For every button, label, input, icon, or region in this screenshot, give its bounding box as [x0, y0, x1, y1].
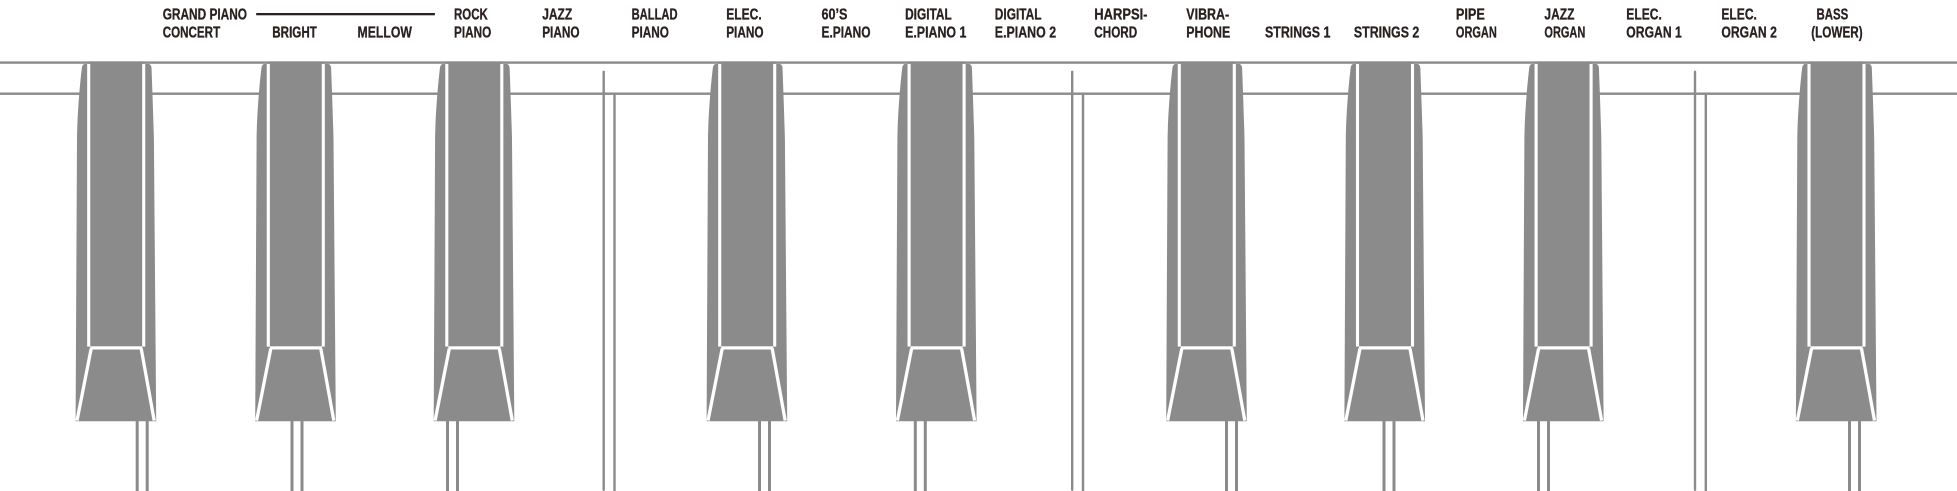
- svg-text:ORGAN: ORGAN: [1456, 25, 1497, 42]
- svg-text:60’S: 60’S: [822, 7, 848, 24]
- svg-text:BRIGHT: BRIGHT: [272, 25, 317, 42]
- svg-text:STRINGS 2: STRINGS 2: [1354, 25, 1420, 42]
- svg-text:ELEC.: ELEC.: [726, 7, 762, 24]
- svg-text:ELEC.: ELEC.: [1626, 7, 1662, 24]
- svg-text:BALLAD: BALLAD: [632, 7, 678, 24]
- svg-text:ORGAN 1: ORGAN 1: [1626, 25, 1682, 42]
- svg-text:ORGAN 2: ORGAN 2: [1721, 25, 1777, 42]
- svg-text:HARPSI-: HARPSI-: [1094, 7, 1147, 24]
- svg-text:MELLOW: MELLOW: [358, 25, 413, 42]
- svg-text:E.PIANO: E.PIANO: [822, 25, 871, 42]
- svg-text:PIANO: PIANO: [454, 25, 491, 42]
- svg-text:CHORD: CHORD: [1094, 25, 1137, 42]
- svg-text:JAZZ: JAZZ: [1544, 7, 1574, 24]
- svg-text:PIANO: PIANO: [726, 25, 763, 42]
- svg-text:DIGITAL: DIGITAL: [995, 7, 1042, 24]
- svg-text:E.PIANO 2: E.PIANO 2: [995, 25, 1057, 42]
- svg-text:JAZZ: JAZZ: [542, 7, 572, 24]
- svg-text:E.PIANO 1: E.PIANO 1: [905, 25, 967, 42]
- svg-text:PIANO: PIANO: [542, 25, 579, 42]
- svg-text:ELEC.: ELEC.: [1721, 7, 1757, 24]
- svg-text:GRAND PIANO: GRAND PIANO: [163, 7, 247, 24]
- svg-text:CONCERT: CONCERT: [163, 25, 221, 42]
- svg-text:BASS: BASS: [1817, 7, 1849, 24]
- svg-text:STRINGS 1: STRINGS 1: [1265, 25, 1331, 42]
- svg-text:PHONE: PHONE: [1186, 25, 1230, 42]
- svg-text:VIBRA-: VIBRA-: [1186, 7, 1229, 24]
- svg-text:ROCK: ROCK: [454, 7, 488, 24]
- svg-text:DIGITAL: DIGITAL: [905, 7, 952, 24]
- svg-text:PIANO: PIANO: [632, 25, 669, 42]
- svg-text:(LOWER): (LOWER): [1811, 25, 1863, 42]
- svg-text:PIPE: PIPE: [1456, 7, 1485, 24]
- svg-text:ORGAN: ORGAN: [1544, 25, 1585, 42]
